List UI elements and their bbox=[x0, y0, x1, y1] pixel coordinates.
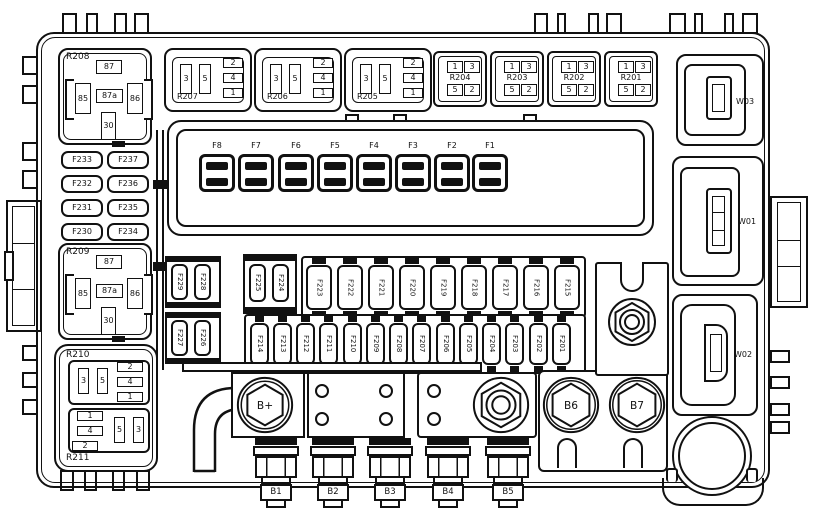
relay-r210-pin-3: 3 bbox=[78, 368, 89, 394]
stud-hex bbox=[312, 456, 354, 478]
bolt-label: B7 bbox=[630, 399, 644, 412]
case-tab bbox=[669, 13, 686, 34]
relay-r203-pin-3: 3 bbox=[521, 61, 537, 73]
relay-nub bbox=[112, 336, 125, 342]
stud-base bbox=[438, 501, 458, 508]
stud-clamp bbox=[255, 438, 297, 445]
maxi-fuse-label: F4 bbox=[356, 142, 392, 150]
fuse-f219: F219 bbox=[430, 265, 456, 310]
connector-w03-key-inner bbox=[712, 84, 725, 112]
maxi-fuse-f8 bbox=[199, 154, 235, 192]
relay-r206-pin-5: 5 bbox=[289, 64, 301, 94]
relay-r207-pin-3: 3 bbox=[180, 64, 192, 94]
relay-nub bbox=[112, 141, 125, 147]
divider-channel bbox=[156, 130, 164, 370]
stud-hex bbox=[487, 456, 529, 478]
relay-r203-pin-5: 5 bbox=[504, 84, 520, 96]
relay-r201-pin-1: 1 bbox=[618, 61, 634, 73]
housing-cap bbox=[165, 256, 221, 262]
case-tab bbox=[134, 13, 149, 34]
relay-r206-pin-3: 3 bbox=[270, 64, 282, 94]
mounting-bracket-left-lug bbox=[4, 251, 14, 281]
relay-r210-pin-2: 2 bbox=[117, 362, 143, 372]
maxi-fuse-label: F1 bbox=[472, 142, 508, 150]
fuse-f205: F205 bbox=[459, 323, 478, 365]
plate-hole bbox=[427, 384, 441, 398]
grommet-clamp-band bbox=[662, 478, 764, 506]
relay-r209-clip-right bbox=[144, 274, 153, 315]
fuse-f232: F232 bbox=[61, 175, 103, 193]
relay-r209-pin-30: 30 bbox=[101, 307, 116, 335]
connector-label: W03 bbox=[736, 98, 754, 106]
maxi-fuse-f6 bbox=[278, 154, 314, 192]
stud-hex-nut bbox=[606, 296, 658, 348]
relay-r204-pin-1: 1 bbox=[447, 61, 463, 73]
maxi-fuse-label: F2 bbox=[434, 142, 470, 150]
plate-hole bbox=[315, 384, 329, 398]
relay-r211-pin-1: 1 bbox=[77, 411, 103, 421]
maxi-fuse-f7 bbox=[238, 154, 274, 192]
fuse-f206: F206 bbox=[436, 323, 455, 365]
case-tab bbox=[588, 13, 599, 34]
relay-r202-pin-2: 2 bbox=[578, 84, 594, 96]
fuse-f202: F202 bbox=[529, 323, 548, 365]
fuse-f233: F233 bbox=[61, 151, 103, 169]
case-tab bbox=[770, 376, 790, 389]
relay-r205-pin-3: 3 bbox=[360, 64, 372, 94]
fuse-f208: F208 bbox=[389, 323, 408, 365]
maxi-fuse-label: F7 bbox=[238, 142, 274, 150]
fuse-f211: F211 bbox=[319, 323, 338, 365]
relay-r211-pin-3: 3 bbox=[133, 417, 144, 443]
relay-r205-pin-5: 5 bbox=[379, 64, 391, 94]
fuse-f231: F231 bbox=[61, 199, 103, 217]
channel-clip bbox=[153, 180, 167, 189]
fuse-f227: F227 bbox=[171, 320, 188, 356]
stud-clamp bbox=[312, 438, 354, 445]
relay-r209-clip-left bbox=[65, 274, 74, 315]
connector-detail-line bbox=[712, 230, 725, 231]
relay-label: R210 bbox=[66, 351, 89, 360]
relay-r203-pin-1: 1 bbox=[504, 61, 520, 73]
relay-r211-pin-5: 5 bbox=[114, 417, 125, 443]
case-tab bbox=[606, 13, 622, 34]
relay-r205-pin-2: 2 bbox=[403, 58, 423, 68]
b7-bolt: B7 bbox=[606, 374, 668, 436]
mounting-bracket-right-inner bbox=[777, 202, 801, 302]
fuse-f209: F209 bbox=[366, 323, 385, 365]
maxi-fuse-label: F3 bbox=[395, 142, 431, 150]
fuse-f224: F224 bbox=[272, 264, 289, 302]
maxi-fuse-label: F8 bbox=[199, 142, 235, 150]
relay-r208-pin-85: 85 bbox=[75, 83, 91, 114]
relay-r201-pin-5: 5 bbox=[618, 84, 634, 96]
relay-r205-pin-4: 4 bbox=[403, 73, 423, 83]
relay-r206-pin-1: 1 bbox=[313, 88, 333, 98]
connector-detail-line bbox=[712, 212, 725, 213]
housing-cap bbox=[165, 302, 221, 308]
stud-label: B4 bbox=[432, 484, 464, 501]
maxi-fuse-label: F6 bbox=[278, 142, 314, 150]
housing-cap bbox=[243, 254, 297, 261]
plate-hole bbox=[379, 412, 393, 426]
case-tab bbox=[62, 13, 77, 34]
maxi-fuse-f3 bbox=[395, 154, 431, 192]
stud-b3: B3 bbox=[365, 446, 415, 508]
connector-w02-key-inner bbox=[710, 334, 722, 372]
fuse-f228: F228 bbox=[194, 264, 211, 300]
bplus-bolt: B+ bbox=[234, 374, 296, 436]
case-tab bbox=[770, 403, 790, 416]
relay-r202-pin-3: 3 bbox=[578, 61, 594, 73]
fuse-f212: F212 bbox=[296, 323, 315, 365]
relay-r204-pin-2: 2 bbox=[464, 84, 480, 96]
relay-label: R202 bbox=[547, 74, 601, 82]
fuse-f201: F201 bbox=[552, 323, 571, 365]
fuse-f229: F229 bbox=[171, 264, 188, 300]
fuse-f221: F221 bbox=[368, 265, 394, 310]
stud-base bbox=[323, 501, 343, 508]
bracket-divider bbox=[777, 266, 801, 267]
stud-hex bbox=[369, 456, 411, 478]
fuse-f217: F217 bbox=[492, 265, 518, 310]
relay-label: R209 bbox=[66, 248, 89, 257]
connector-w01-key-inner bbox=[712, 196, 725, 246]
maxi-fuse-label: F5 bbox=[317, 142, 353, 150]
relay-r208-pin-86: 86 bbox=[127, 83, 143, 114]
housing-cap bbox=[165, 312, 221, 318]
stud-b5: B5 bbox=[483, 446, 533, 508]
relay-r201-pin-2: 2 bbox=[635, 84, 651, 96]
case-tab bbox=[114, 13, 127, 34]
relay-r210-pin-5: 5 bbox=[97, 368, 108, 394]
fuse-f204: F204 bbox=[482, 323, 501, 365]
relay-r211-pin-2: 2 bbox=[72, 441, 98, 451]
fuse-f207: F207 bbox=[412, 323, 431, 365]
stud-clamp bbox=[369, 438, 411, 445]
relay-r211-pin-4: 4 bbox=[77, 426, 103, 436]
fuse-f225: F225 bbox=[249, 264, 266, 302]
relay-label: R201 bbox=[604, 74, 658, 82]
relay-label: R211 bbox=[66, 454, 89, 463]
relay-r207-pin-1: 1 bbox=[223, 88, 243, 98]
ring-nut bbox=[470, 374, 532, 436]
stud-b2: B2 bbox=[308, 446, 358, 508]
stud-label: B1 bbox=[260, 484, 292, 501]
fuse-f216: F216 bbox=[523, 265, 549, 310]
case-tab bbox=[694, 13, 703, 34]
bracket-slot bbox=[557, 438, 577, 468]
relay-r201-pin-3: 3 bbox=[635, 61, 651, 73]
stud-label: B5 bbox=[492, 484, 524, 501]
housing-cap bbox=[243, 307, 297, 314]
relay-r209-pin-87: 87 bbox=[96, 255, 122, 269]
relay-label: R207 bbox=[177, 93, 198, 101]
stud-flange bbox=[367, 446, 413, 456]
relay-label: R206 bbox=[267, 93, 288, 101]
busbar-strip bbox=[182, 362, 482, 372]
relay-r206-pin-4: 4 bbox=[313, 73, 333, 83]
relay-r204-pin-3: 3 bbox=[464, 61, 480, 73]
case-tab bbox=[86, 13, 98, 34]
terminal-plate-4hole bbox=[307, 372, 405, 438]
relay-r208-clip-right bbox=[144, 79, 153, 120]
plate-hole bbox=[315, 412, 329, 426]
fuse-f226: F226 bbox=[194, 320, 211, 356]
fuse-f218: F218 bbox=[461, 265, 487, 310]
relay-r209-pin-86: 86 bbox=[127, 278, 143, 309]
bracket-slot bbox=[623, 438, 643, 468]
connector-label: W01 bbox=[738, 218, 756, 226]
b6-bolt: B6 bbox=[540, 374, 602, 436]
fuse-f222: F222 bbox=[337, 265, 363, 310]
relay-r208-pin-30: 30 bbox=[101, 112, 116, 140]
fuse-f234: F234 bbox=[107, 223, 149, 241]
panel-keyhole-slot bbox=[620, 262, 644, 292]
fuse-f215: F215 bbox=[554, 265, 580, 310]
case-tab bbox=[557, 13, 566, 34]
relay-label: R204 bbox=[433, 74, 487, 82]
relay-r208-pin-87a: 87a bbox=[96, 89, 123, 103]
relay-r204-pin-5: 5 bbox=[447, 84, 463, 96]
maxi-fuse-f1 bbox=[472, 154, 508, 192]
relay-r202-pin-5: 5 bbox=[561, 84, 577, 96]
plate-hole bbox=[427, 412, 441, 426]
relay-r207-pin-2: 2 bbox=[223, 58, 243, 68]
bracket-divider bbox=[12, 289, 35, 290]
case-tab bbox=[770, 350, 790, 363]
maxi-fuse-f4 bbox=[356, 154, 392, 192]
case-tab bbox=[724, 13, 734, 34]
maxi-fuse-f2 bbox=[434, 154, 470, 192]
case-tab bbox=[534, 13, 548, 34]
stud-flange bbox=[485, 446, 531, 456]
relay-r205-pin-1: 1 bbox=[403, 88, 423, 98]
stud-b1: B1 bbox=[251, 446, 301, 508]
stud-flange bbox=[253, 446, 299, 456]
fuse-f236: F236 bbox=[107, 175, 149, 193]
relay-r203-pin-2: 2 bbox=[521, 84, 537, 96]
relay-r210-pin-4: 4 bbox=[117, 377, 143, 387]
stud-hex bbox=[427, 456, 469, 478]
stud-label: B2 bbox=[317, 484, 349, 501]
fuse-f237: F237 bbox=[107, 151, 149, 169]
case-tab bbox=[770, 421, 790, 434]
stud-label: B3 bbox=[374, 484, 406, 501]
bracket-divider bbox=[12, 243, 35, 244]
stud-flange bbox=[310, 446, 356, 456]
stud-clamp bbox=[427, 438, 469, 445]
relay-label: R203 bbox=[490, 74, 544, 82]
relay-r208-clip-left bbox=[65, 79, 74, 120]
relay-r207-pin-4: 4 bbox=[223, 73, 243, 83]
mounting-bracket-left-inner bbox=[12, 206, 35, 326]
fuse-f230: F230 bbox=[61, 223, 103, 241]
relay-r207-pin-5: 5 bbox=[199, 64, 211, 94]
fuse-f210: F210 bbox=[343, 323, 362, 365]
relay-r209-pin-85: 85 bbox=[75, 278, 91, 309]
stud-base bbox=[266, 501, 286, 508]
fuse-f235: F235 bbox=[107, 199, 149, 217]
relay-r202-pin-1: 1 bbox=[561, 61, 577, 73]
stud-base bbox=[498, 501, 518, 508]
stud-flange bbox=[425, 446, 471, 456]
fuse-box-diagram: R208 87 85 87a 86 30 F233 F237 F232 F236… bbox=[0, 0, 828, 524]
stud-b4: B4 bbox=[423, 446, 473, 508]
stud-clamp bbox=[487, 438, 529, 445]
fuse-f213: F213 bbox=[273, 323, 292, 365]
stud-hex bbox=[255, 456, 297, 478]
case-tab bbox=[742, 13, 758, 34]
maxi-fuse-f5 bbox=[317, 154, 353, 192]
relay-label: R208 bbox=[66, 53, 89, 62]
fuse-f220: F220 bbox=[399, 265, 425, 310]
connector-label: W02 bbox=[734, 351, 752, 359]
plate-hole bbox=[379, 384, 393, 398]
bolt-label: B6 bbox=[564, 399, 578, 412]
bolt-label: B+ bbox=[257, 399, 273, 412]
relay-r206-pin-2: 2 bbox=[313, 58, 333, 68]
fuse-f203: F203 bbox=[505, 323, 524, 365]
relay-r208-pin-87: 87 bbox=[96, 60, 122, 74]
bracket-divider bbox=[777, 240, 801, 241]
fuse-f223: F223 bbox=[306, 265, 332, 310]
stud-base bbox=[380, 501, 400, 508]
relay-r209-pin-87a: 87a bbox=[96, 284, 123, 298]
relay-label: R205 bbox=[357, 93, 378, 101]
relay-r210-pin-1: 1 bbox=[117, 392, 143, 402]
fuse-f214: F214 bbox=[250, 323, 269, 365]
